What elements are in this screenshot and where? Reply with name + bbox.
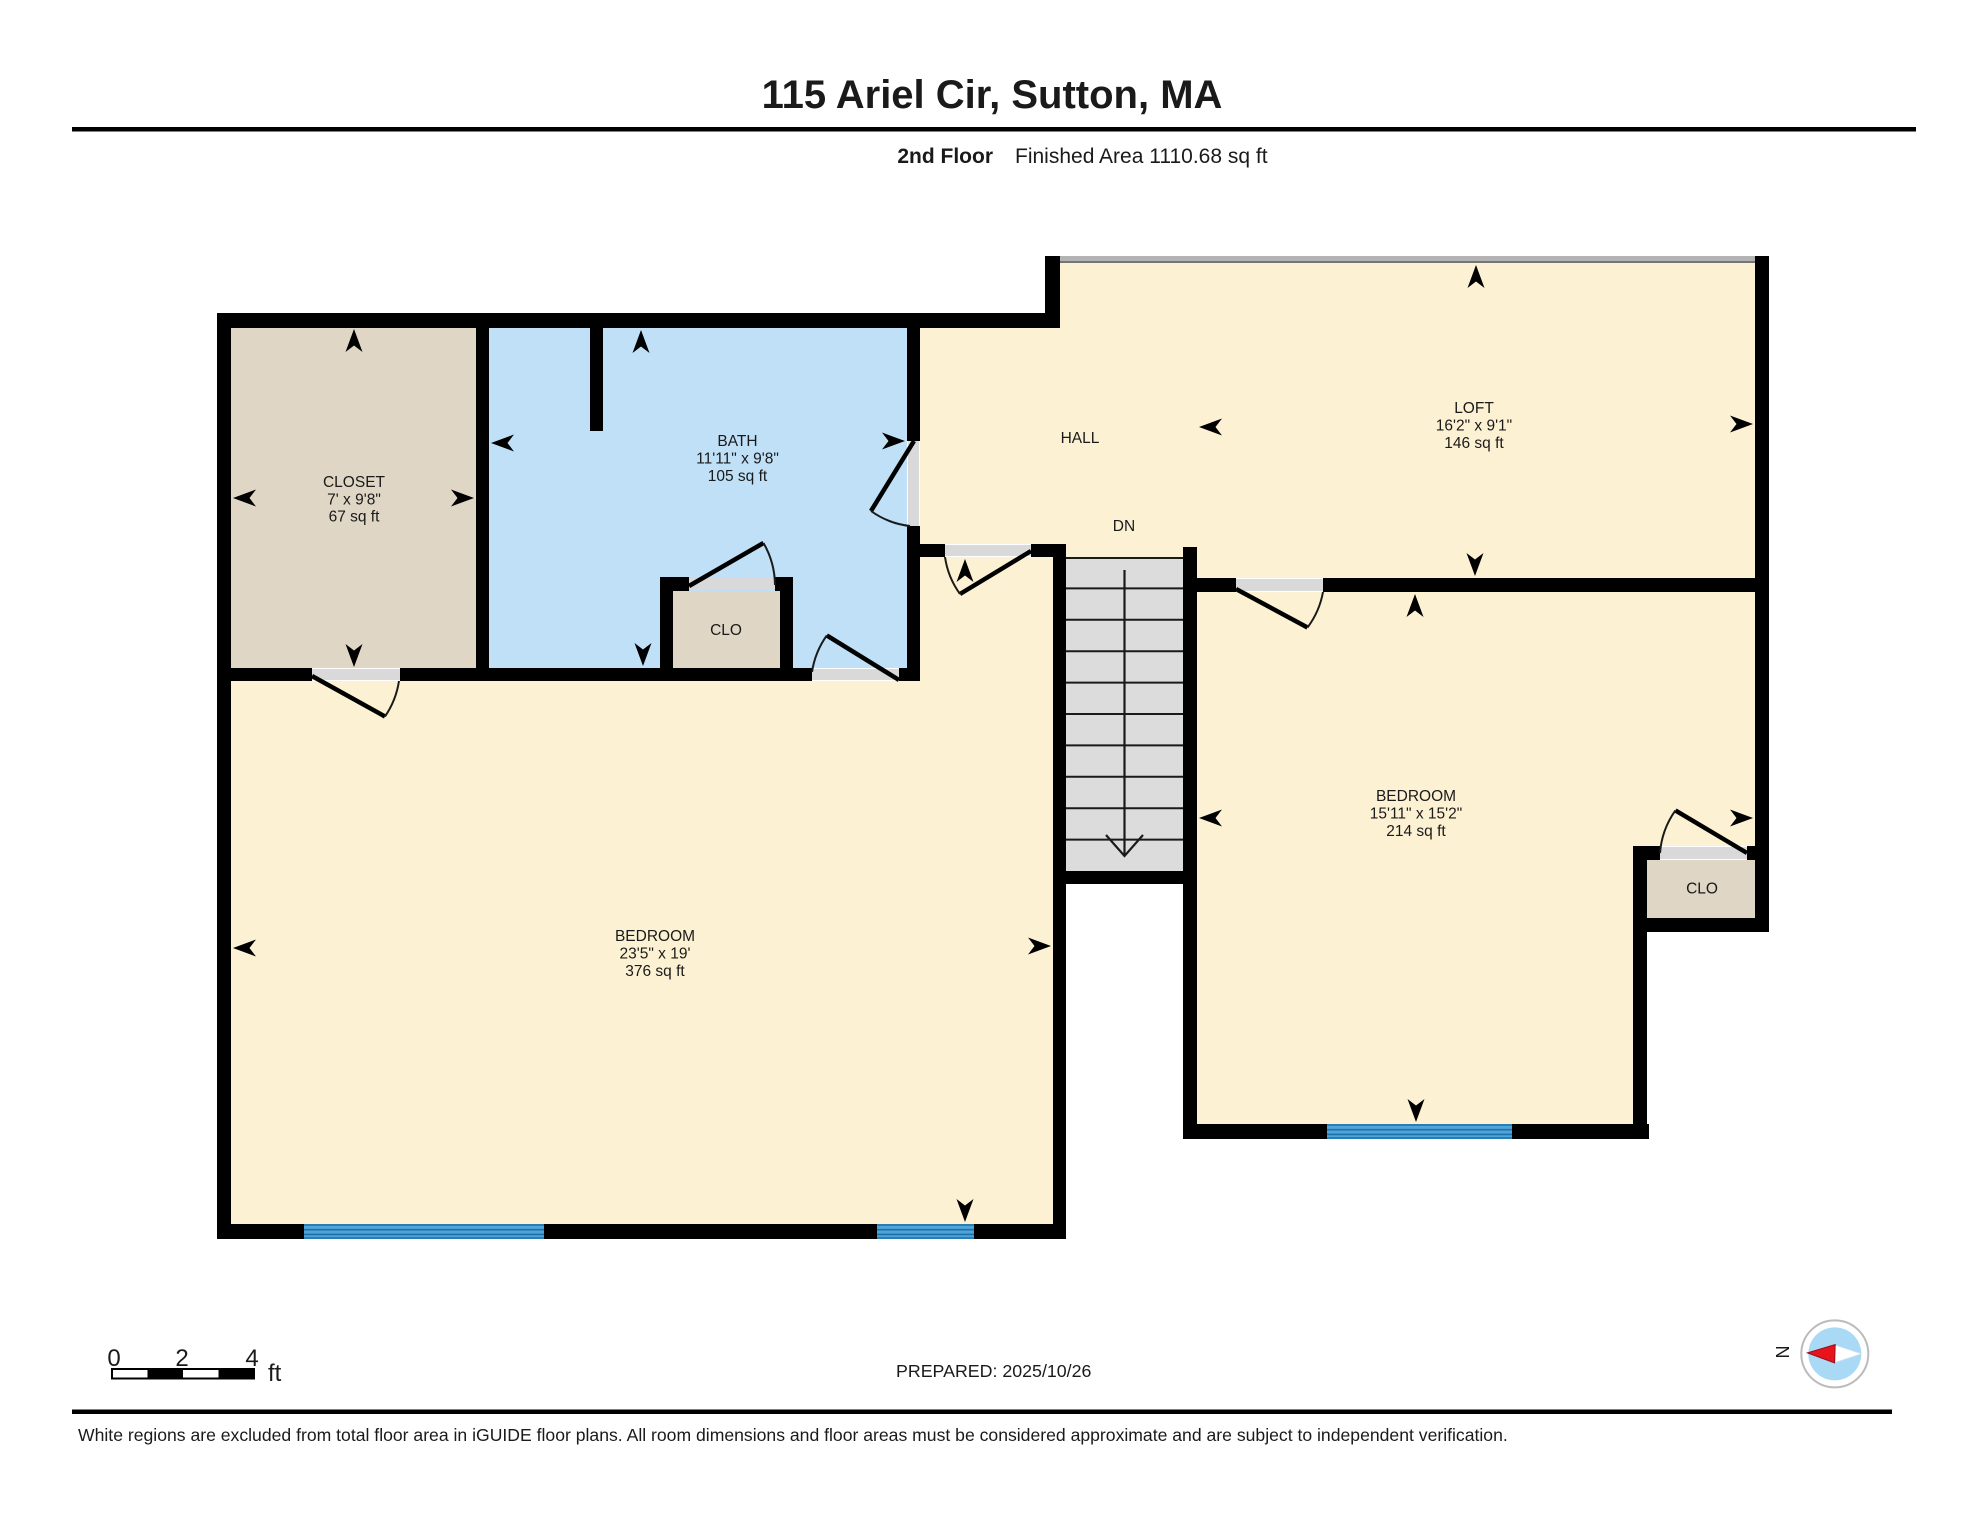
- svg-text:0: 0: [107, 1345, 120, 1372]
- svg-text:N: N: [1773, 1346, 1793, 1359]
- svg-text:115 Ariel Cir, Sutton, MA: 115 Ariel Cir, Sutton, MA: [762, 73, 1223, 117]
- svg-text:67 sq ft: 67 sq ft: [329, 509, 381, 526]
- svg-text:4: 4: [245, 1345, 258, 1372]
- svg-text:BEDROOM: BEDROOM: [1376, 788, 1456, 805]
- svg-text:DN: DN: [1113, 518, 1135, 535]
- svg-text:Finished Area 1110.68 sq ft: Finished Area 1110.68 sq ft: [1015, 145, 1268, 168]
- svg-text:CLOSET: CLOSET: [323, 474, 386, 491]
- svg-text:BATH: BATH: [717, 433, 757, 450]
- svg-text:BEDROOM: BEDROOM: [615, 928, 695, 945]
- svg-text:CLO: CLO: [1686, 881, 1718, 898]
- svg-text:HALL: HALL: [1061, 430, 1100, 447]
- svg-text:White regions are excluded fro: White regions are excluded from total fl…: [78, 1425, 1508, 1445]
- svg-text:LOFT: LOFT: [1454, 400, 1494, 417]
- svg-text:146 sq ft: 146 sq ft: [1444, 435, 1504, 452]
- svg-text:ft: ft: [268, 1360, 282, 1387]
- svg-text:PREPARED: 2025/10/26: PREPARED: 2025/10/26: [896, 1361, 1091, 1381]
- svg-text:16'2" x 9'1": 16'2" x 9'1": [1436, 418, 1512, 435]
- svg-text:11'11" x 9'8": 11'11" x 9'8": [696, 451, 779, 468]
- svg-text:15'11" x 15'2": 15'11" x 15'2": [1370, 805, 1462, 822]
- svg-text:214 sq ft: 214 sq ft: [1386, 823, 1446, 840]
- svg-text:CLO: CLO: [710, 622, 742, 639]
- svg-text:2nd Floor: 2nd Floor: [897, 145, 993, 168]
- svg-text:23'5" x 19': 23'5" x 19': [620, 946, 691, 963]
- svg-text:7' x 9'8": 7' x 9'8": [327, 491, 381, 508]
- svg-text:376 sq ft: 376 sq ft: [625, 963, 685, 980]
- svg-text:2: 2: [175, 1345, 188, 1372]
- svg-text:105 sq ft: 105 sq ft: [708, 468, 768, 485]
